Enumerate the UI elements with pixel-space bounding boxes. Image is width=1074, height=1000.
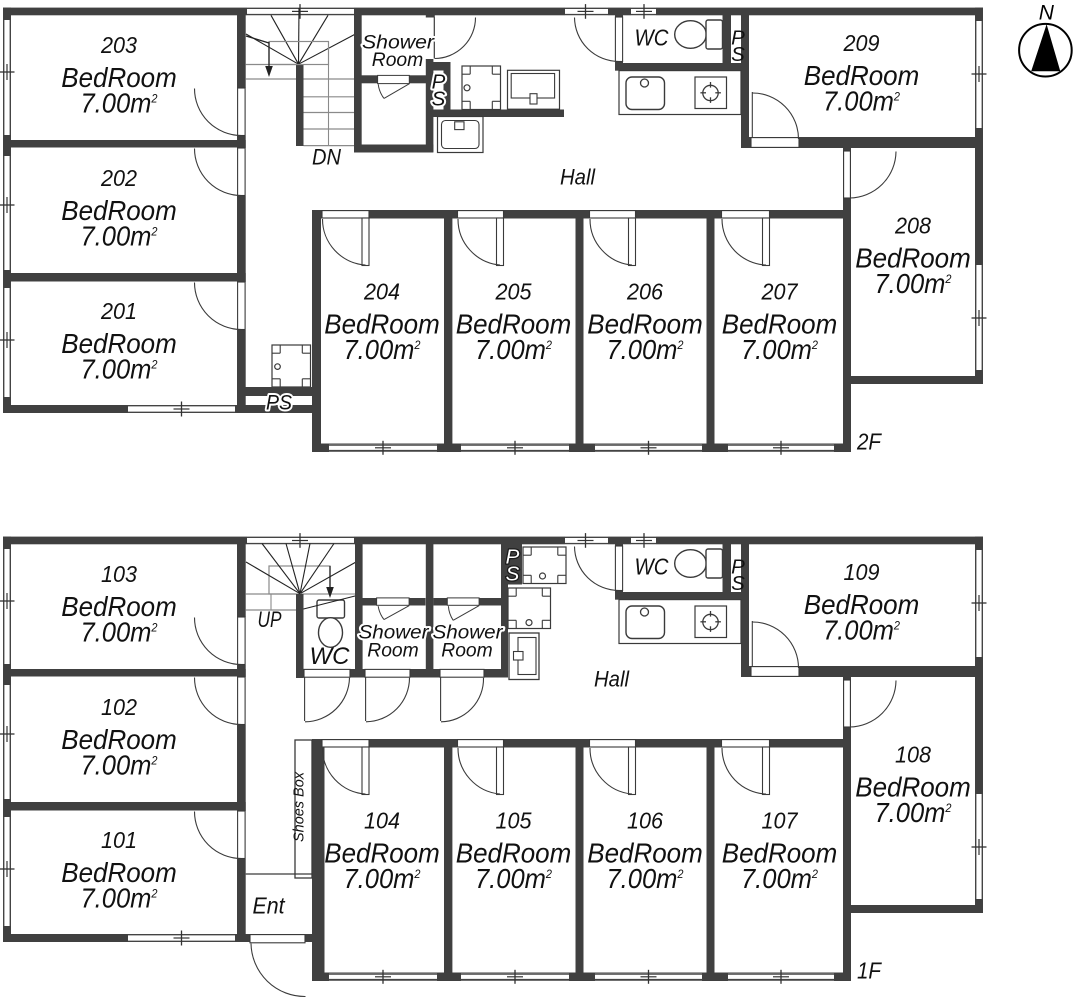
svg-text:7.00m2: 7.00m2 bbox=[81, 221, 158, 252]
svg-text:209: 209 bbox=[843, 30, 880, 56]
svg-text:PS: PS bbox=[266, 391, 293, 415]
svg-text:S: S bbox=[731, 43, 745, 66]
svg-text:108: 108 bbox=[895, 742, 931, 768]
svg-text:7.00m2: 7.00m2 bbox=[741, 863, 818, 894]
svg-text:7.00m2: 7.00m2 bbox=[81, 354, 158, 385]
svg-text:Hall: Hall bbox=[594, 667, 630, 692]
svg-text:S: S bbox=[432, 88, 446, 111]
svg-text:101: 101 bbox=[101, 827, 137, 853]
svg-text:7.00m2: 7.00m2 bbox=[344, 863, 421, 894]
svg-text:204: 204 bbox=[363, 279, 400, 305]
svg-text:202: 202 bbox=[100, 165, 137, 191]
svg-text:7.00m2: 7.00m2 bbox=[81, 88, 158, 119]
svg-text:103: 103 bbox=[101, 561, 137, 587]
svg-text:DN: DN bbox=[312, 145, 341, 170]
svg-text:7.00m2: 7.00m2 bbox=[875, 268, 952, 299]
svg-text:201: 201 bbox=[100, 298, 137, 324]
svg-text:206: 206 bbox=[626, 279, 663, 305]
svg-text:S: S bbox=[731, 572, 745, 595]
svg-text:104: 104 bbox=[364, 808, 400, 834]
svg-text:7.00m2: 7.00m2 bbox=[823, 86, 900, 117]
svg-text:1F: 1F bbox=[857, 958, 883, 984]
svg-text:Room: Room bbox=[441, 640, 493, 662]
svg-text:WC: WC bbox=[635, 554, 669, 580]
svg-text:Room: Room bbox=[372, 49, 424, 71]
svg-text:WC: WC bbox=[635, 25, 669, 51]
svg-text:UP: UP bbox=[258, 607, 282, 632]
svg-text:105: 105 bbox=[496, 808, 532, 834]
svg-text:109: 109 bbox=[844, 559, 880, 585]
svg-text:7.00m2: 7.00m2 bbox=[81, 883, 158, 914]
svg-text:7.00m2: 7.00m2 bbox=[81, 750, 158, 781]
svg-text:7.00m2: 7.00m2 bbox=[475, 334, 552, 365]
svg-text:7.00m2: 7.00m2 bbox=[81, 617, 158, 648]
svg-text:7.00m2: 7.00m2 bbox=[475, 863, 552, 894]
svg-text:N: N bbox=[1039, 2, 1055, 25]
svg-text:7.00m2: 7.00m2 bbox=[823, 615, 900, 646]
svg-text:205: 205 bbox=[495, 279, 532, 305]
svg-text:107: 107 bbox=[762, 808, 799, 834]
svg-text:106: 106 bbox=[627, 808, 663, 834]
svg-text:102: 102 bbox=[101, 694, 137, 720]
svg-text:WC: WC bbox=[310, 643, 351, 670]
svg-text:207: 207 bbox=[761, 279, 799, 305]
svg-text:7.00m2: 7.00m2 bbox=[607, 863, 684, 894]
svg-text:S: S bbox=[506, 563, 520, 586]
svg-text:7.00m2: 7.00m2 bbox=[607, 334, 684, 365]
svg-text:Shoes Box: Shoes Box bbox=[291, 772, 308, 842]
svg-text:Ent: Ent bbox=[253, 893, 286, 919]
svg-text:203: 203 bbox=[100, 32, 137, 58]
svg-text:7.00m2: 7.00m2 bbox=[741, 334, 818, 365]
svg-text:2F: 2F bbox=[856, 429, 883, 455]
svg-text:7.00m2: 7.00m2 bbox=[344, 334, 421, 365]
svg-text:208: 208 bbox=[894, 213, 931, 239]
svg-text:Hall: Hall bbox=[560, 164, 596, 189]
svg-text:7.00m2: 7.00m2 bbox=[875, 797, 952, 828]
svg-text:Room: Room bbox=[367, 640, 419, 662]
